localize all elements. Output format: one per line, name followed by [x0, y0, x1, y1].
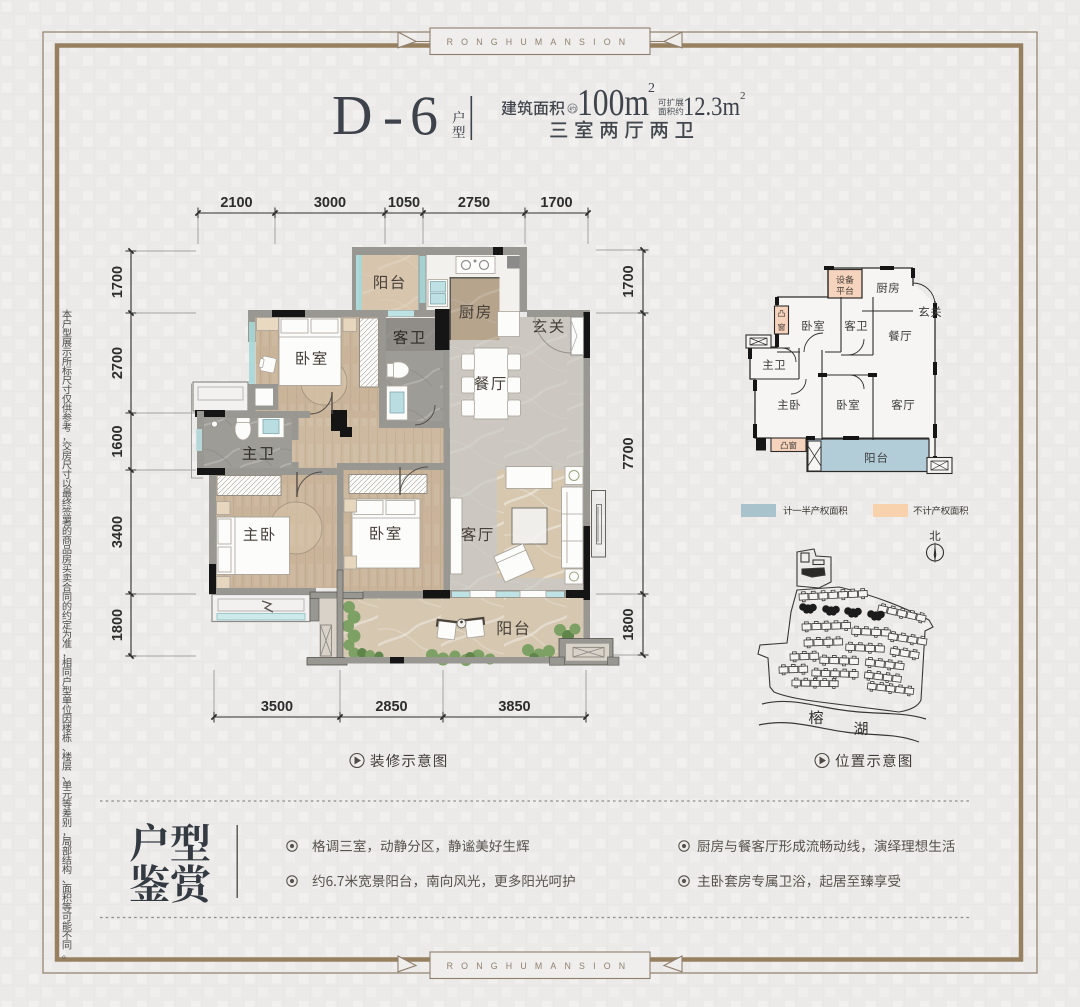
svg-text:3850: 3850	[498, 699, 530, 715]
svg-text:1600: 1600	[110, 425, 126, 457]
svg-text:RONGHUMANSION: RONGHUMANSION	[447, 961, 634, 971]
svg-text:6: 6	[410, 86, 438, 148]
svg-text:3400: 3400	[110, 516, 126, 548]
svg-text:2750: 2750	[458, 195, 490, 211]
svg-text:1700: 1700	[621, 265, 637, 297]
svg-text:2850: 2850	[375, 699, 407, 715]
svg-text:2100: 2100	[220, 195, 252, 211]
svg-text:2700: 2700	[110, 347, 126, 379]
svg-text:3000: 3000	[314, 195, 346, 211]
svg-text:7700: 7700	[621, 437, 637, 469]
svg-text:RONGHUMANSION: RONGHUMANSION	[447, 37, 634, 47]
svg-text:D: D	[332, 85, 372, 147]
svg-text:1800: 1800	[110, 609, 126, 641]
svg-text:2: 2	[648, 81, 655, 96]
svg-text:1700: 1700	[110, 266, 126, 298]
svg-text:12.3m: 12.3m	[683, 92, 740, 121]
svg-text:1700: 1700	[540, 195, 572, 211]
svg-text:2: 2	[740, 90, 746, 102]
svg-text:100m: 100m	[577, 82, 649, 124]
svg-text:1800: 1800	[621, 608, 637, 640]
svg-text:1050: 1050	[388, 195, 420, 211]
svg-text:3500: 3500	[261, 699, 293, 715]
